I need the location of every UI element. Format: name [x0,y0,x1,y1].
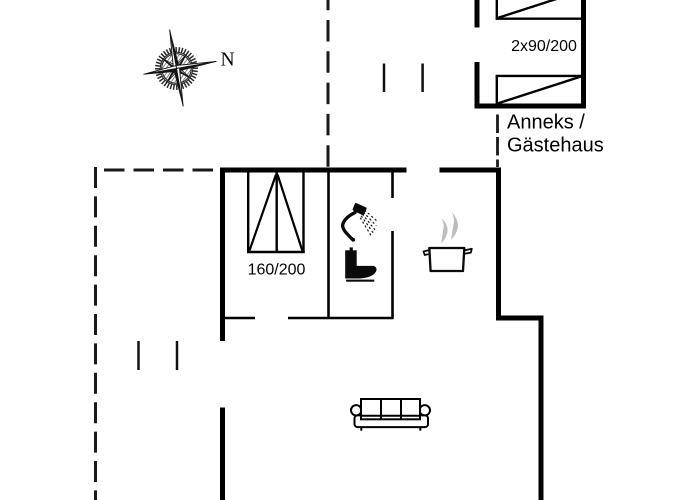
svg-text:N: N [220,50,234,71]
svg-text:Anneks /: Anneks / [507,112,585,134]
svg-text:160/200: 160/200 [248,262,306,279]
svg-text:2x90/200: 2x90/200 [511,38,577,55]
svg-text:Gästehaus: Gästehaus [507,135,604,157]
